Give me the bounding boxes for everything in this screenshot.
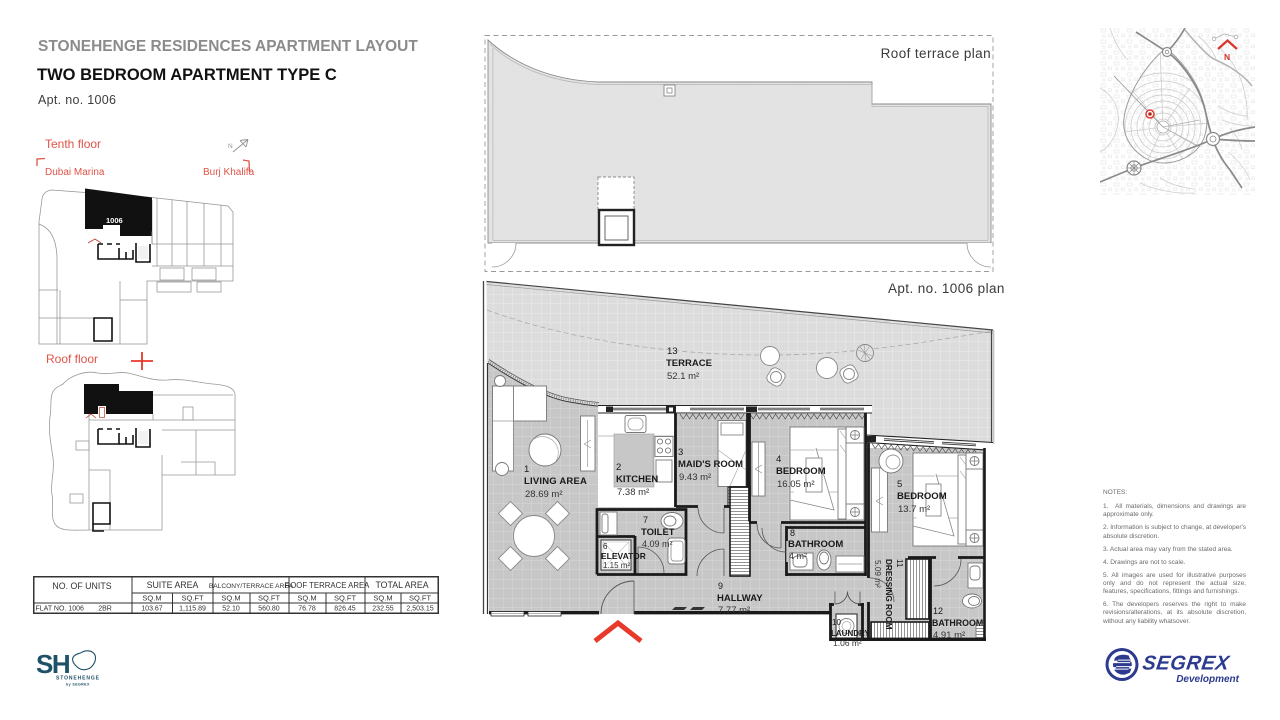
svg-text:ELEVATOR: ELEVATOR (601, 551, 646, 561)
svg-text:2BR: 2BR (98, 606, 112, 613)
svg-text:LIVING AREA: LIVING AREA (524, 476, 587, 487)
svg-text:52.1 m²: 52.1 m² (667, 371, 699, 382)
svg-text:SQ.M: SQ.M (142, 594, 161, 603)
svg-text:11: 11 (895, 559, 904, 568)
svg-text:5.09 m²: 5.09 m² (873, 560, 882, 588)
svg-text:SQ.M: SQ.M (373, 594, 392, 603)
svg-text:10: 10 (832, 618, 841, 627)
svg-text:BEDROOM: BEDROOM (897, 491, 947, 502)
svg-text:16.05 m²: 16.05 m² (777, 479, 815, 490)
svg-text:DRESSING ROOM: DRESSING ROOM (884, 559, 893, 630)
svg-text:12: 12 (933, 606, 943, 616)
svg-text:BALCONY/TERRACE AREA: BALCONY/TERRACE AREA (209, 583, 294, 590)
svg-text:TOILET: TOILET (641, 527, 675, 538)
svg-text:13.7 m²: 13.7 m² (898, 504, 930, 515)
svg-text:3: 3 (678, 447, 683, 458)
svg-text:826.45: 826.45 (334, 606, 356, 613)
svg-text:SQ.M: SQ.M (297, 594, 316, 603)
svg-text:HALLWAY: HALLWAY (717, 593, 763, 604)
svg-text:9: 9 (718, 581, 723, 591)
svg-text:1.06 m²: 1.06 m² (833, 638, 862, 648)
svg-text:TERRACE: TERRACE (666, 358, 712, 369)
svg-text:BATHROOM: BATHROOM (932, 618, 983, 628)
svg-text:SQ.M: SQ.M (221, 594, 240, 603)
svg-text:1.15 m²: 1.15 m² (603, 561, 630, 570)
svg-text:MAID'S ROOM: MAID'S ROOM (678, 459, 743, 470)
svg-text:4: 4 (776, 454, 781, 465)
svg-text:9.43 m²: 9.43 m² (679, 472, 711, 483)
svg-text:SUITE AREA: SUITE AREA (147, 580, 199, 590)
svg-text:TOTAL AREA: TOTAL AREA (375, 580, 428, 590)
svg-text:ROOF TERRACE AREA: ROOF TERRACE AREA (285, 581, 371, 590)
svg-text:13: 13 (667, 346, 678, 357)
svg-text:1,115.89: 1,115.89 (179, 606, 206, 613)
svg-text:LAUNDRY: LAUNDRY (831, 629, 870, 638)
svg-text:4.91 m²: 4.91 m² (933, 630, 965, 641)
svg-text:28.69 m²: 28.69 m² (525, 489, 563, 500)
svg-text:6: 6 (603, 542, 608, 551)
svg-text:KITCHEN: KITCHEN (616, 474, 658, 485)
svg-text:SEGREX: SEGREX (1141, 653, 1232, 675)
svg-text:BATHROOM: BATHROOM (788, 539, 843, 550)
svg-text:4.09 m²: 4.09 m² (642, 539, 673, 549)
svg-text:1: 1 (524, 464, 529, 475)
svg-text:560.80: 560.80 (258, 606, 280, 613)
svg-text:SQ.FT: SQ.FT (334, 594, 357, 603)
svg-text:103.67: 103.67 (141, 606, 163, 613)
svg-text:52.10: 52.10 (222, 606, 240, 613)
svg-text:N: N (1224, 52, 1230, 62)
svg-text:SH: SH (36, 649, 70, 679)
svg-text:2: 2 (616, 462, 621, 473)
svg-text:7: 7 (643, 515, 648, 525)
svg-text:4 m²: 4 m² (789, 551, 807, 561)
svg-text:by SEGREX: by SEGREX (66, 683, 90, 687)
svg-text:SQ.FT: SQ.FT (181, 594, 204, 603)
svg-text:5: 5 (897, 479, 902, 490)
svg-text:FLAT NO. 1006: FLAT NO. 1006 (36, 606, 84, 613)
svg-text:8: 8 (790, 528, 795, 538)
svg-text:232.55: 232.55 (372, 606, 394, 613)
svg-text:BEDROOM: BEDROOM (776, 466, 826, 477)
svg-text:N: N (228, 143, 233, 150)
svg-text:Development: Development (1176, 674, 1239, 685)
svg-text:Roof terrace plan: Roof terrace plan (881, 46, 991, 61)
svg-text:SQ.FT: SQ.FT (258, 594, 281, 603)
svg-text:SQ.FT: SQ.FT (409, 594, 432, 603)
svg-text:STONEHENGE: STONEHENGE (56, 676, 100, 682)
svg-text:7.38 m²: 7.38 m² (617, 487, 649, 498)
svg-text:7.77 m²: 7.77 m² (718, 605, 750, 616)
svg-text:76.78: 76.78 (298, 606, 316, 613)
svg-text:NO. OF UNITS: NO. OF UNITS (52, 581, 111, 591)
svg-text:1006: 1006 (106, 216, 123, 225)
svg-text:2,503.15: 2,503.15 (406, 606, 433, 613)
